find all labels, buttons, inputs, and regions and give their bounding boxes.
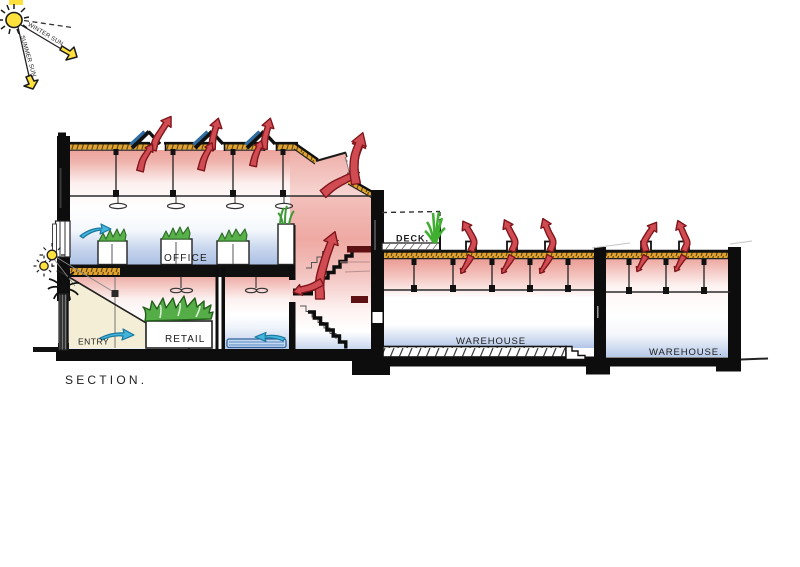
svg-text:OFFICE: OFFICE <box>164 253 208 264</box>
svg-text:WAREHOUSE.: WAREHOUSE. <box>649 347 723 358</box>
svg-text:WAREHOUSE: WAREHOUSE <box>456 336 526 347</box>
svg-text:ENTRY: ENTRY <box>78 337 109 347</box>
svg-text:DECK.: DECK. <box>396 234 429 244</box>
svg-text:SECTION.: SECTION. <box>65 373 147 387</box>
svg-text:RETAIL: RETAIL <box>165 334 205 345</box>
